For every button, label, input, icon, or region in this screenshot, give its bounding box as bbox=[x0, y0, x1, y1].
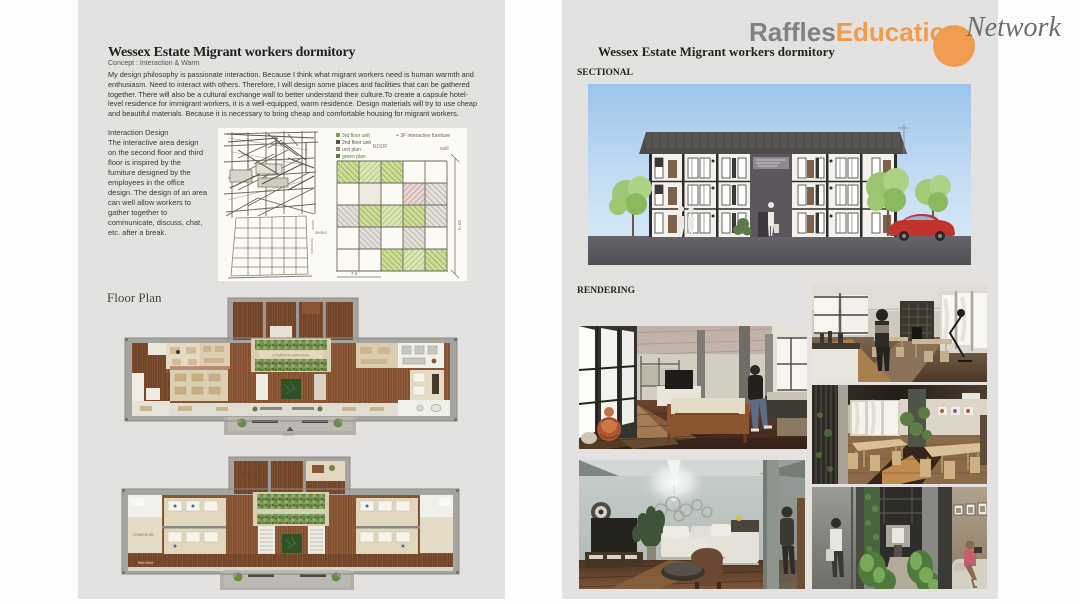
svg-text:2nd floor unit: 2nd floor unit bbox=[342, 140, 372, 146]
svg-text:30 m: 30 m bbox=[457, 220, 462, 230]
svg-text:COMMON RM: COMMON RM bbox=[133, 533, 154, 537]
svg-text:+ 3F interactive furniture: + 3F interactive furniture bbox=[396, 133, 450, 139]
svg-text:COMMON GARDEN: COMMON GARDEN bbox=[272, 353, 309, 358]
svg-text:3rd floor unit: 3rd floor unit bbox=[342, 133, 370, 139]
svg-text:7.5: 7.5 bbox=[351, 271, 358, 276]
svg-text:ENTRY: ENTRY bbox=[283, 433, 295, 437]
svg-text:desks: desks bbox=[315, 230, 328, 235]
svg-text:WALKWAY: WALKWAY bbox=[138, 561, 155, 565]
svg-text:unit plan: unit plan bbox=[342, 147, 361, 153]
svg-text:green plan: green plan bbox=[342, 154, 366, 160]
svg-text:wall: wall bbox=[440, 146, 449, 152]
svg-text:ROOF: ROOF bbox=[373, 144, 387, 150]
